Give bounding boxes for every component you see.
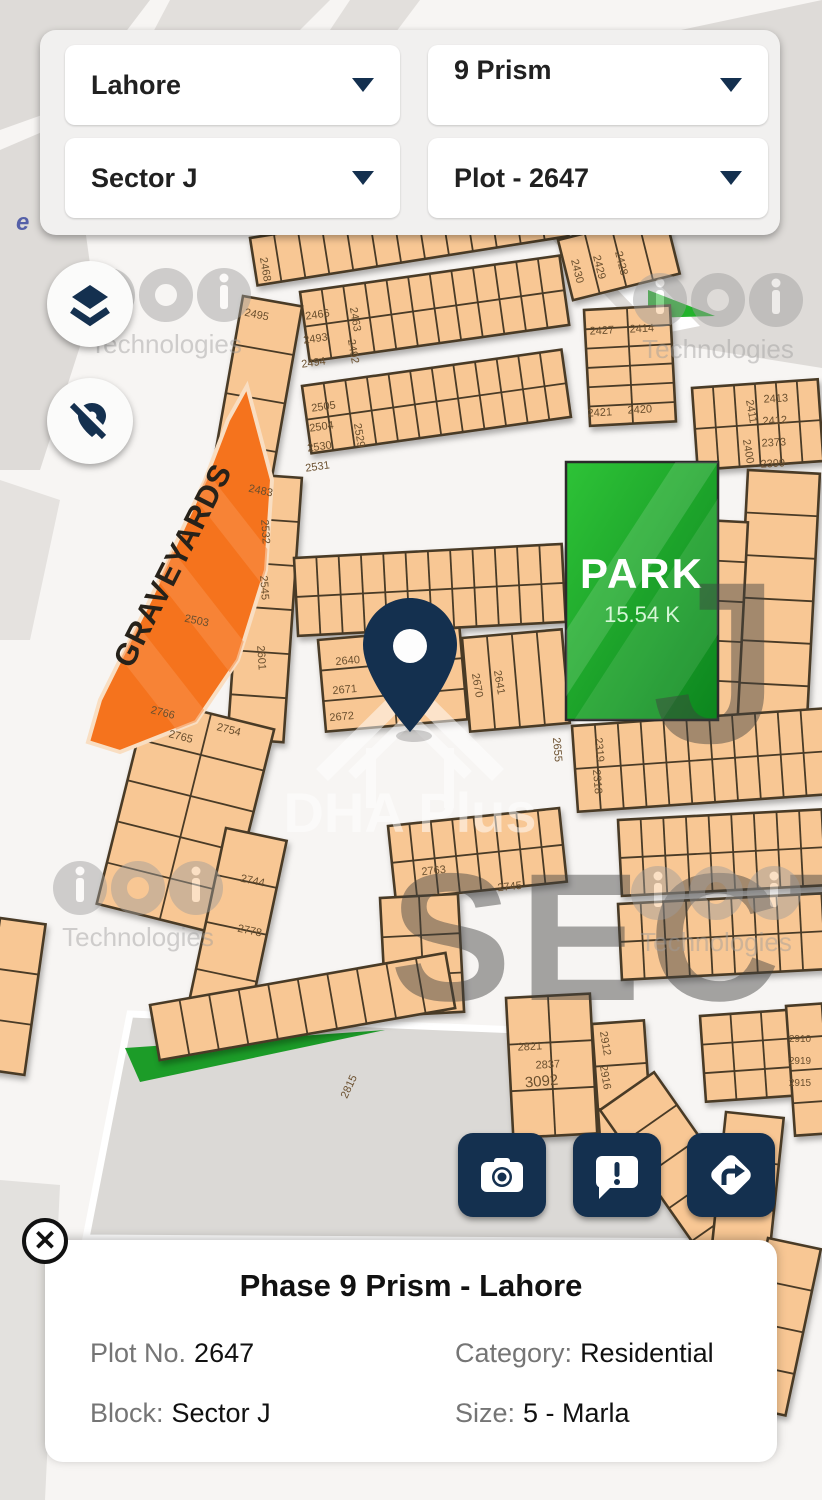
plot-number-label: 2545 xyxy=(257,575,271,600)
directions-button[interactable] xyxy=(687,1133,775,1217)
city-dropdown-value: Lahore xyxy=(91,70,342,101)
plot-number-label: 2413 xyxy=(763,392,788,405)
svg-text:J: J xyxy=(652,534,780,791)
plot-number-label: 2399 xyxy=(760,457,785,470)
sector-dropdown-value: Sector J xyxy=(91,163,342,194)
plot-number-label: 2915 xyxy=(789,1078,812,1089)
size-field: Size:5 - Marla xyxy=(455,1398,630,1429)
phase-dropdown[interactable]: 9 Prism xyxy=(428,45,768,125)
camera-icon xyxy=(477,1152,527,1198)
plot-number-label: 2837 xyxy=(535,1058,560,1071)
plot-number-label: 2412 xyxy=(762,414,787,427)
plot-dropdown-value: Plot - 2647 xyxy=(454,163,710,194)
ioi-logo-watermark: Technologies xyxy=(633,273,803,364)
plot-number-label: 2427 xyxy=(589,324,614,337)
plot-number-label: 2655 xyxy=(550,737,564,762)
plot-number-label: 2421 xyxy=(587,406,612,419)
ioi-logo-watermark: Technologies xyxy=(53,861,223,952)
plot-number-label: 2601 xyxy=(254,645,268,670)
report-bubble-icon xyxy=(592,1150,642,1200)
phase-dropdown-value: 9 Prism xyxy=(454,55,710,86)
block-field: Block:Sector J xyxy=(90,1398,271,1429)
directions-icon xyxy=(705,1149,757,1201)
chevron-down-icon xyxy=(352,78,374,92)
technologies-watermark-label: Technologies xyxy=(62,922,214,952)
plot-info-card: Phase 9 Prism - Lahore Plot No.2647 Cate… xyxy=(45,1240,777,1462)
plot-number-label: 2671 xyxy=(332,683,357,697)
plot-dropdown[interactable]: Plot - 2647 xyxy=(428,138,768,218)
map-layers-button[interactable] xyxy=(47,261,133,347)
plot-number-label: 2532 xyxy=(258,519,272,544)
chevron-down-icon xyxy=(720,78,742,92)
my-location-off-button[interactable] xyxy=(47,378,133,464)
close-info-card-button[interactable]: ✕ xyxy=(22,1218,68,1264)
app-screen: GRAVEYARDS PARK 15.54 K 2468249525032466… xyxy=(0,0,822,1500)
plot-number-label: 2640 xyxy=(335,654,360,668)
chevron-down-icon xyxy=(352,171,374,185)
plot-number-label: 2672 xyxy=(329,710,354,724)
location-off-icon xyxy=(64,395,116,447)
plot-number-field: Plot No.2647 xyxy=(90,1338,254,1369)
technologies-watermark-label: Technologies xyxy=(640,927,792,957)
plot-info-title: Phase 9 Prism - Lahore xyxy=(45,1268,777,1304)
svg-text:DHA Plus: DHA Plus xyxy=(283,781,536,844)
layers-icon xyxy=(64,278,116,330)
technologies-watermark-label: Technologies xyxy=(642,334,794,364)
plot-selector-card: Lahore 9 Prism Sector J Plot - 2647 xyxy=(40,30,780,235)
chevron-down-icon xyxy=(720,171,742,185)
road-label: e xyxy=(16,209,29,236)
close-icon: ✕ xyxy=(33,1227,56,1255)
ioi-logo-watermark: Technologies xyxy=(631,866,801,957)
plot-number-label: 2319 xyxy=(592,737,606,762)
sector-dropdown[interactable]: Sector J xyxy=(65,138,400,218)
category-field: Category:Residential xyxy=(455,1338,714,1369)
plot-number-label: 2318 xyxy=(590,769,604,794)
city-dropdown[interactable]: Lahore xyxy=(65,45,400,125)
plot-number-label: 2420 xyxy=(627,403,652,416)
plot-number-label: 2373 xyxy=(761,436,786,449)
camera-button[interactable] xyxy=(458,1133,546,1217)
report-issue-button[interactable] xyxy=(573,1133,661,1217)
plot-number-label: 3092 xyxy=(524,1072,559,1092)
plot-number-label: 2919 xyxy=(789,1056,812,1067)
plot-number-label: 2821 xyxy=(517,1040,542,1053)
